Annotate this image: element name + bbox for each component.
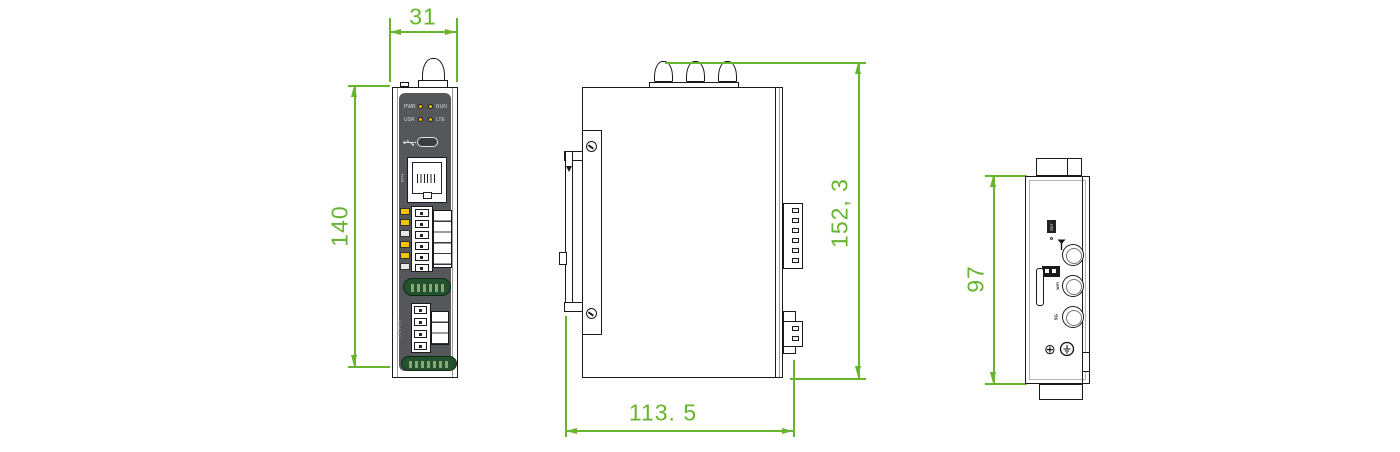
side-power-connector-tab2 bbox=[783, 346, 796, 354]
end-bottom-protrusion bbox=[1039, 384, 1083, 400]
led-lte bbox=[428, 117, 433, 122]
power-terminal-cell bbox=[414, 306, 427, 314]
led-pwr-label: PWR bbox=[404, 104, 416, 110]
led-pwr bbox=[418, 104, 423, 109]
side-io-pin bbox=[792, 258, 799, 263]
side-right-fold-inner bbox=[779, 88, 780, 377]
end-top-protrusion bbox=[1036, 158, 1082, 176]
side-io-pin bbox=[792, 218, 799, 223]
usb-port bbox=[417, 137, 438, 147]
sma-connector-2 bbox=[1062, 275, 1084, 297]
side-enclosure bbox=[582, 87, 783, 378]
io-terminal-cell bbox=[415, 220, 429, 228]
wifi-antenna-label: WIFI bbox=[1056, 282, 1060, 289]
io-tag-3 bbox=[400, 230, 410, 237]
sim-card-slot bbox=[1036, 268, 1044, 306]
dim-113-line bbox=[565, 430, 794, 432]
led-usr-label: USR bbox=[404, 117, 415, 123]
dim-140-text: 140 bbox=[327, 205, 354, 246]
green-connector-strip bbox=[403, 278, 451, 296]
dim-113-arrow-left bbox=[566, 428, 577, 434]
dim-97-arrow-top bbox=[990, 176, 996, 187]
power-spec-label: DC 9-36V bbox=[397, 319, 402, 337]
dim-152-ext-top bbox=[665, 62, 866, 64]
dimension-drawing: 31 140 PWR RUN USR LTE bbox=[0, 0, 1400, 452]
eth-label: ETH bbox=[400, 174, 405, 182]
din-screw-top bbox=[586, 141, 597, 152]
sim-eject-switch bbox=[1042, 266, 1060, 277]
io-tag-1 bbox=[400, 208, 410, 215]
power-terminal-cell bbox=[414, 318, 427, 326]
dim-31-ext-right bbox=[456, 18, 458, 82]
dim-152-ext-bottom bbox=[790, 378, 866, 380]
side-antenna-icon bbox=[654, 61, 673, 82]
side-antenna-icon bbox=[686, 61, 705, 82]
dim-113-text: 113. 5 bbox=[629, 400, 697, 427]
dim-97-line bbox=[993, 175, 995, 384]
din-clip-foot bbox=[564, 302, 583, 312]
eth-rj45-tab bbox=[423, 192, 432, 199]
io-tag-6 bbox=[400, 263, 410, 270]
power-terminal-cover bbox=[431, 311, 449, 345]
led-run-label: RUN bbox=[436, 104, 447, 110]
dim-31-text: 31 bbox=[409, 4, 437, 31]
led-lte-label: LTE bbox=[436, 117, 445, 123]
end-right-step bbox=[1082, 352, 1090, 372]
dim-152-arrow-top bbox=[855, 63, 861, 74]
io-terminal-cell bbox=[415, 253, 429, 261]
front-rail-right bbox=[452, 88, 453, 377]
ground-terminal-icon bbox=[1059, 341, 1075, 357]
led-usr bbox=[418, 117, 423, 122]
dim-113-ext-left bbox=[565, 316, 567, 437]
io-terminal-cover bbox=[433, 210, 452, 268]
dim-152-text: 152, 3 bbox=[827, 178, 854, 248]
dim-31-arrow-left bbox=[390, 29, 401, 35]
din-clip-tab bbox=[559, 252, 567, 265]
dim-97-text: 97 bbox=[963, 265, 990, 293]
led-run bbox=[428, 104, 433, 109]
sma-connector-3 bbox=[1062, 306, 1084, 328]
din-plate bbox=[582, 130, 602, 335]
io-tag-4 bbox=[400, 241, 410, 248]
dim-152-arrow-bottom bbox=[855, 366, 861, 377]
eth-rj45-pins bbox=[417, 174, 437, 183]
io-terminal-cell bbox=[415, 209, 429, 217]
side-right-fold bbox=[775, 88, 776, 377]
side-io-pin bbox=[792, 228, 799, 233]
side-io-pin bbox=[792, 238, 799, 243]
io-terminal-cell bbox=[415, 264, 429, 272]
dim-140-arrow-bottom bbox=[351, 355, 357, 366]
io-tag-5 bbox=[400, 252, 410, 259]
reset-label: RST bbox=[1050, 223, 1054, 230]
front-antenna-icon bbox=[422, 58, 445, 81]
side-io-pin bbox=[792, 248, 799, 253]
end-top-protrusion-line bbox=[1067, 159, 1068, 175]
dim-113-arrow-right bbox=[782, 428, 793, 434]
power-terminal-cell bbox=[414, 342, 427, 350]
dim-152-line bbox=[858, 62, 860, 378]
side-antenna-icon bbox=[718, 61, 737, 82]
brand-label-strip bbox=[401, 356, 457, 371]
din-screw-bottom bbox=[586, 308, 597, 319]
din-clip-bar bbox=[565, 151, 573, 312]
dim-113-ext-right bbox=[793, 360, 795, 437]
cell-antenna-label: 5G bbox=[1054, 314, 1059, 320]
io-terminal-cell bbox=[415, 242, 429, 250]
side-io-pin bbox=[792, 208, 799, 213]
io-tag-2 bbox=[400, 219, 410, 226]
dim-97-arrow-bottom bbox=[990, 372, 996, 383]
io-terminal-cell bbox=[415, 231, 429, 239]
power-terminal-cell bbox=[414, 330, 427, 338]
dim-97-ext-bottom bbox=[985, 383, 1027, 385]
dim-31-arrow-right bbox=[445, 29, 456, 35]
din-clip-notch bbox=[566, 166, 572, 172]
side-power-pin bbox=[792, 336, 799, 341]
screw-icon: ⊕ bbox=[1044, 342, 1056, 356]
usb-icon bbox=[403, 138, 416, 147]
sma-connector-1 bbox=[1062, 244, 1084, 266]
dim-140-line bbox=[354, 85, 356, 367]
dim-140-arrow-top bbox=[351, 86, 357, 97]
side-power-connector bbox=[783, 321, 803, 347]
side-power-pin bbox=[792, 326, 799, 331]
reset-hole bbox=[1050, 237, 1053, 240]
